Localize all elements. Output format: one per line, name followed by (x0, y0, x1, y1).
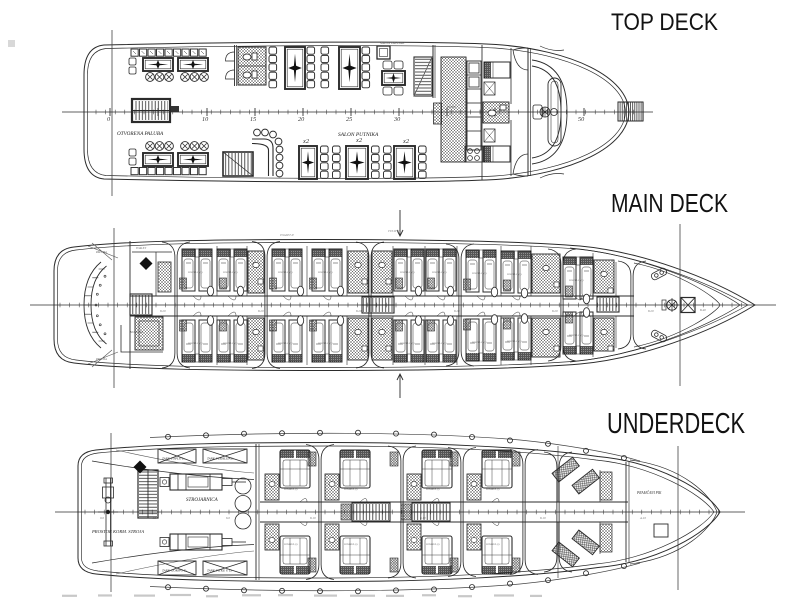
svg-text:PONIKVE (2): PONIKVE (2) (343, 543, 358, 546)
svg-text:POSTELJA (2): POSTELJA (2) (506, 273, 522, 276)
svg-text:SALON PREDAH: SALON PREDAH (380, 41, 405, 45)
svg-text:POSTELJA (2): POSTELJA (2) (506, 340, 522, 343)
svg-text:30: 30 (393, 116, 401, 123)
svg-text:10: 10 (202, 116, 209, 123)
svg-text:POSTELJA (2): POSTELJA (2) (568, 334, 584, 337)
svg-text:6.0: 6.0 (226, 516, 230, 520)
svg-text:POSTELJA (2): POSTELJA (2) (431, 342, 447, 345)
svg-text:PONIKVE (2): PONIKVE (2) (283, 543, 298, 546)
svg-text:TANK TOPLO L.: TANK TOPLO L. (162, 457, 185, 461)
svg-text:PONIKVE (2): PONIKVE (2) (343, 488, 358, 491)
svg-text:POSTELJA (2): POSTELJA (2) (568, 279, 584, 282)
svg-text:8.10: 8.10 (540, 516, 546, 520)
svg-text:PONIKVE (2): PONIKVE (2) (425, 488, 440, 491)
svg-text:PONIKVE (2): PONIKVE (2) (485, 543, 500, 546)
svg-text:POSTELJA (2): POSTELJA (2) (187, 342, 203, 345)
svg-text:BUFET: BUFET (447, 106, 456, 109)
svg-text:POSTELJA (2): POSTELJA (2) (399, 342, 415, 345)
svg-text:15: 15 (250, 116, 256, 123)
svg-text:PONIKVE (2): PONIKVE (2) (425, 543, 440, 546)
svg-text:POSTELJA (2): POSTELJA (2) (277, 271, 293, 274)
svg-text:PONIKVE (2): PONIKVE (2) (485, 488, 500, 491)
svg-text:8.20: 8.20 (160, 309, 166, 313)
svg-text:TANK GORIVO D.: TANK GORIVO D. (162, 569, 187, 573)
svg-text:8.20: 8.20 (258, 309, 264, 313)
svg-text:PRAMČANI PIK: PRAMČANI PIK (636, 490, 662, 495)
svg-text:POSTELJA (2): POSTELJA (2) (399, 271, 415, 274)
svg-text:POSTELJA (2): POSTELJA (2) (277, 342, 293, 345)
svg-text:20: 20 (298, 116, 305, 123)
svg-text:TOP DECK: TOP DECK (611, 9, 718, 36)
svg-text:TOALET II: TOALET II (280, 233, 294, 237)
svg-text:POSTELJA (2): POSTELJA (2) (471, 341, 487, 344)
svg-text:x2: x2 (355, 137, 363, 144)
svg-text:8.20: 8.20 (356, 309, 362, 313)
svg-text:PALUBA: PALUBA (95, 250, 107, 254)
svg-text:25: 25 (346, 116, 352, 123)
svg-text:POSTELJA (2): POSTELJA (2) (317, 271, 333, 274)
svg-text:PONIKVE (2): PONIKVE (2) (283, 488, 298, 491)
svg-text:POSTELJA (2): POSTELJA (2) (471, 272, 487, 275)
svg-text:OTVORENA PALUBA: OTVORENA PALUBA (117, 131, 164, 137)
svg-text:STROJARNICA: STROJARNICA (186, 498, 219, 503)
svg-text:0: 0 (107, 116, 111, 123)
svg-text:PROSTOR KORM. STROJA: PROSTOR KORM. STROJA (91, 529, 144, 534)
svg-text:MAIN DECK: MAIN DECK (611, 188, 729, 218)
svg-text:POSTELJA (2): POSTELJA (2) (222, 271, 238, 274)
svg-text:8.10: 8.10 (310, 516, 316, 520)
svg-text:8.20: 8.20 (648, 309, 654, 313)
svg-text:UNDERDECK: UNDERDECK (607, 408, 745, 440)
svg-text:TANK PITKE V. D.: TANK PITKE V. D. (207, 569, 232, 573)
svg-text:0.0: 0.0 (100, 516, 104, 520)
svg-text:TUS II WC: TUS II WC (388, 229, 402, 233)
svg-text:A.10: A.10 (639, 516, 646, 520)
svg-text:TANK FEKALIJA L.: TANK FEKALIJA L. (207, 457, 234, 461)
svg-text:PALUBA: PALUBA (95, 357, 107, 361)
svg-text:8.20: 8.20 (552, 309, 558, 313)
svg-text:POSTELJA (2): POSTELJA (2) (317, 342, 333, 345)
svg-text:POSTELJA (2): POSTELJA (2) (431, 271, 447, 274)
svg-text:x2: x2 (302, 138, 310, 145)
svg-text:KONOBA: KONOBA (129, 330, 143, 334)
svg-text:POSTELJA (2): POSTELJA (2) (222, 342, 238, 345)
svg-text:50: 50 (578, 116, 585, 123)
svg-text:TOALET: TOALET (136, 247, 146, 250)
svg-text:POSTELJA (2): POSTELJA (2) (187, 271, 203, 274)
svg-text:8.40: 8.40 (700, 308, 706, 312)
svg-text:x2: x2 (402, 138, 410, 145)
